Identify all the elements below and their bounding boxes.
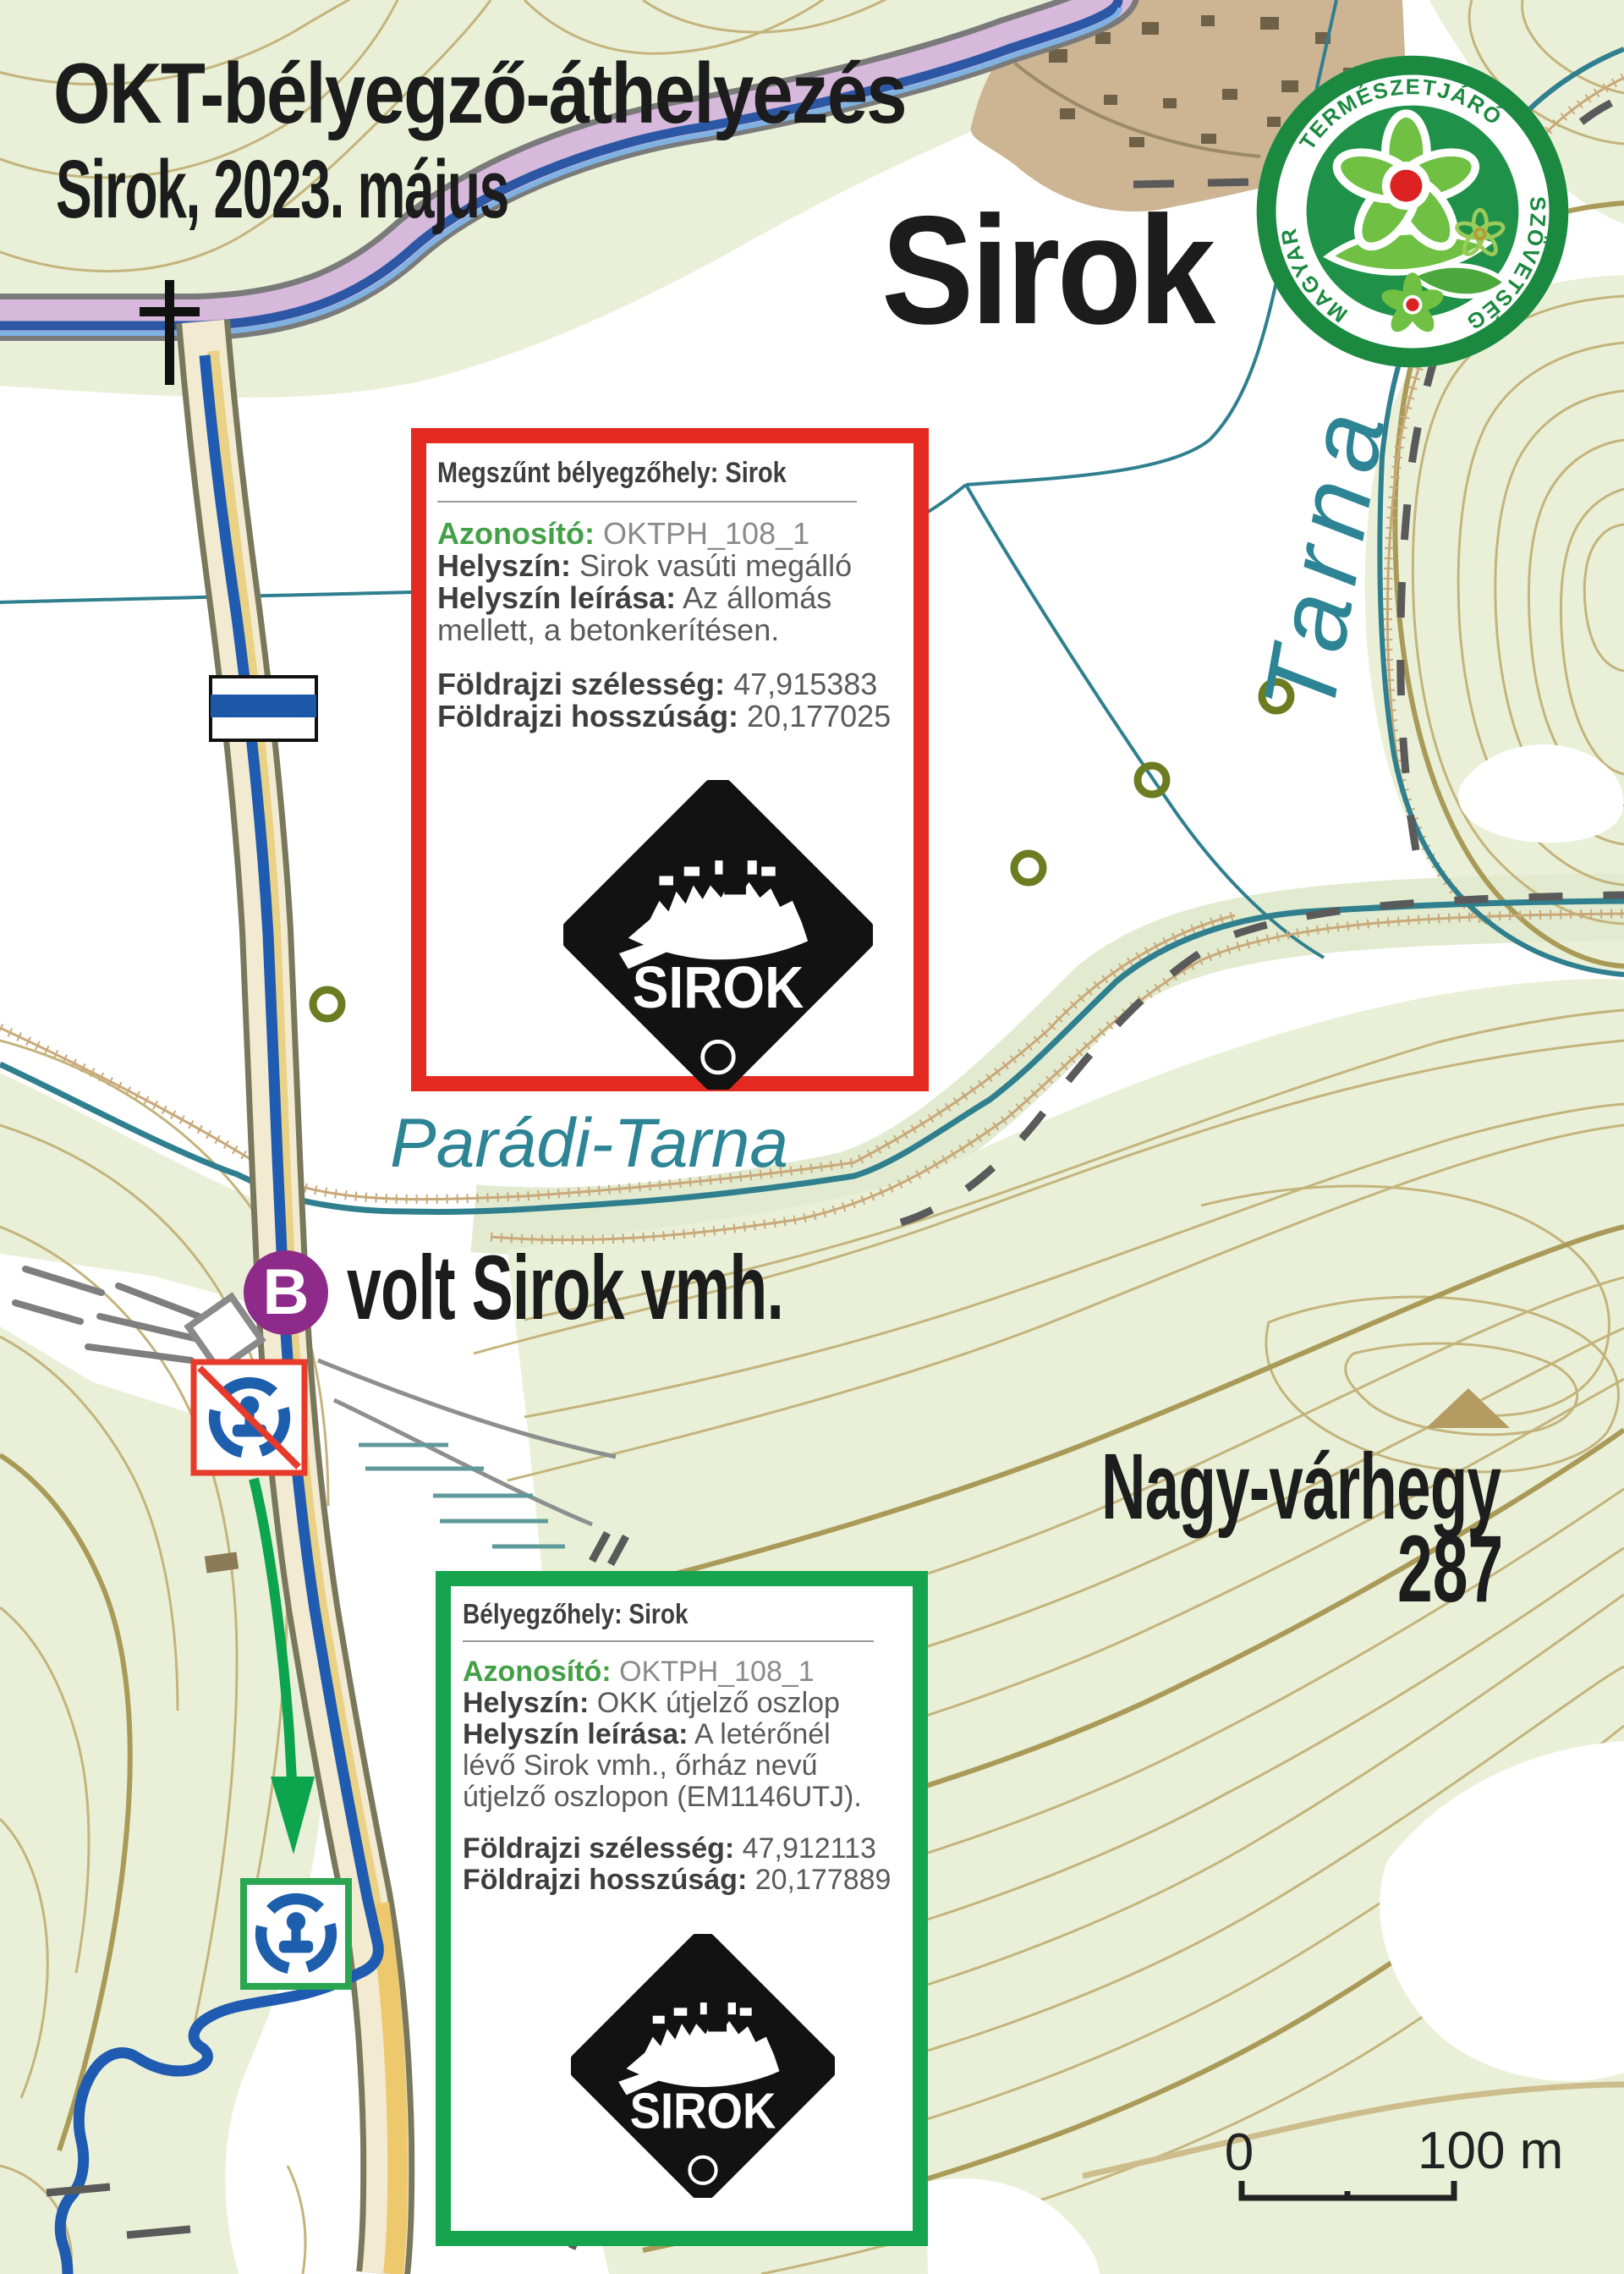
svg-text:B: B [263, 1256, 310, 1328]
svg-text:0: 0 [1225, 2123, 1254, 2182]
svg-text:100 m: 100 m [1418, 2122, 1563, 2180]
